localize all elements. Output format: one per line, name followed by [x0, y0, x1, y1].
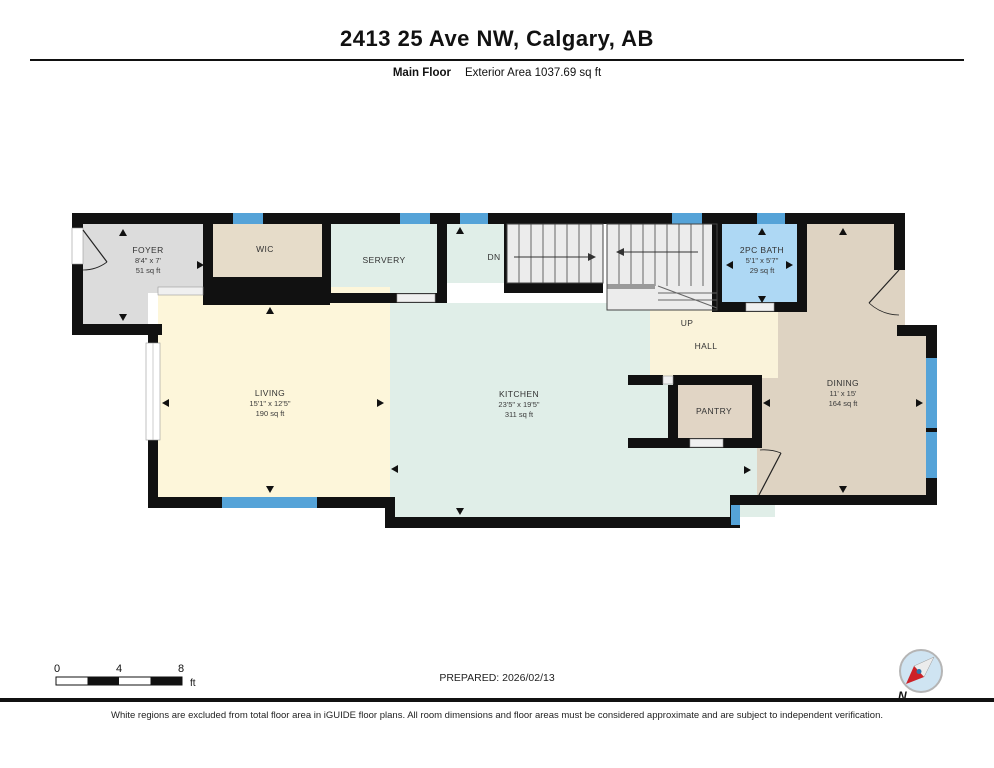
wall-servery-left — [322, 224, 331, 303]
opening-pantry-bottom — [690, 439, 723, 447]
scale-tick-4: 4 — [116, 663, 122, 675]
wall-pantry-top-right — [673, 375, 762, 385]
kitchen-label: KITCHEN — [499, 389, 539, 399]
foyer-label: FOYER — [132, 245, 163, 255]
stairs-up-label: UP — [681, 318, 694, 328]
foyer-floor-lower — [83, 293, 148, 324]
scale-unit: ft — [190, 678, 196, 689]
wall-servery-right — [437, 224, 447, 303]
entry-door-frame — [72, 228, 83, 264]
wall-kitchen-bottom — [385, 517, 740, 528]
foyer-dims: 8'4" x 7' — [135, 256, 162, 265]
window-servery-left — [400, 213, 430, 224]
dining-dims: 11' x 15' — [830, 389, 857, 398]
wall-right-upper — [894, 213, 905, 270]
foyer-area: 51 sq ft — [136, 266, 162, 275]
window-dining-right-2 — [926, 432, 937, 478]
servery-label: SERVERY — [362, 255, 405, 265]
wall-pantry-right — [752, 375, 762, 448]
scale-tick-8: 8 — [178, 663, 184, 675]
opening-bath-door — [746, 303, 774, 311]
scale-tick-0: 0 — [54, 663, 60, 675]
wall-band-below-wic — [203, 277, 330, 305]
scale-bar-seg1 — [88, 677, 120, 685]
scale-bar: 0 4 8 ft — [54, 663, 196, 689]
disclaimer-text: White regions are excluded from total fl… — [0, 710, 994, 721]
bath-area: 29 sq ft — [750, 266, 776, 275]
stairs-landing-floor — [607, 286, 717, 310]
floor-plan: FOYER 8'4" x 7' 51 sq ft WIC SERVERY DN … — [0, 0, 994, 768]
living-area: 190 sq ft — [256, 409, 286, 418]
wall-foyer-wic — [203, 224, 213, 284]
stairs-dn-label: DN — [487, 252, 500, 262]
stairs-rail — [607, 284, 655, 289]
footer-divider — [0, 698, 994, 702]
window-wic — [233, 213, 263, 224]
window-living-bottom — [222, 497, 317, 508]
window-step-small — [731, 505, 740, 525]
bath-label: 2PC BATH — [740, 245, 784, 255]
window-stair-top — [672, 213, 702, 224]
compass-icon: N — [898, 650, 942, 703]
kitchen-dims: 23'5" x 19'5" — [498, 400, 539, 409]
opening-foyer-living — [158, 287, 203, 295]
hall-label: HALL — [695, 341, 718, 351]
dining-area: 164 sq ft — [829, 399, 859, 408]
opening-pantry-top — [663, 376, 673, 384]
opening-below-servery — [397, 294, 435, 302]
wall-right-step — [897, 325, 937, 336]
prepared-date: PREPARED: 2026/02/13 — [439, 672, 555, 684]
wall-below-dn — [504, 283, 603, 293]
dining-label: DINING — [827, 378, 859, 388]
wall-pantry-top-left — [628, 375, 663, 385]
window-dining-right-1 — [926, 358, 937, 428]
window-bath — [757, 213, 785, 224]
compass-center-dot — [917, 669, 922, 674]
pantry-label: PANTRY — [696, 406, 732, 416]
wall-bath-right — [797, 213, 807, 312]
wall-pantry-left — [668, 385, 678, 438]
window-kitchen-top — [460, 213, 488, 224]
wic-label: WIC — [256, 244, 274, 254]
scale-bar-seg2 — [151, 677, 183, 685]
kitchen-area: 311 sq ft — [505, 410, 534, 419]
living-dims: 15'1" x 12'5" — [249, 399, 290, 408]
bath-dims: 5'1" x 5'7" — [746, 256, 779, 265]
wall-dining-bottom — [730, 495, 937, 505]
living-label: LIVING — [255, 388, 285, 398]
